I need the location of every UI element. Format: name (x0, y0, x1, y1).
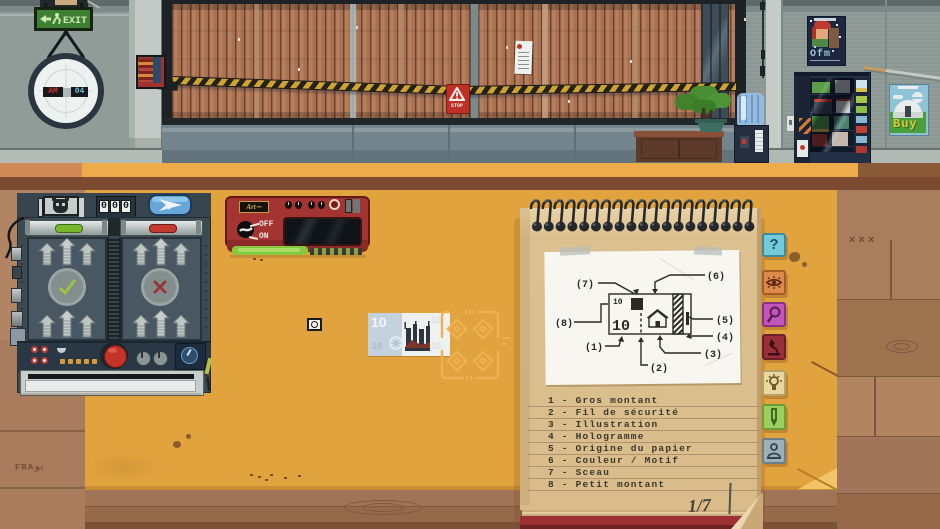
svg-text:(3): (3) (704, 349, 722, 361)
svg-text:(2): (2) (650, 363, 668, 375)
svg-text:10: 10 (613, 298, 623, 307)
svg-text:(1): (1) (585, 342, 603, 354)
svg-text:(6): (6) (707, 271, 725, 283)
svg-text:(4): (4) (716, 332, 734, 344)
svg-text:(8): (8) (555, 318, 573, 330)
svg-text:EXIT: EXIT (63, 16, 87, 26)
svg-text:(5): (5) (716, 315, 734, 327)
svg-text:(7): (7) (576, 279, 594, 291)
svg-text:10: 10 (612, 318, 630, 335)
